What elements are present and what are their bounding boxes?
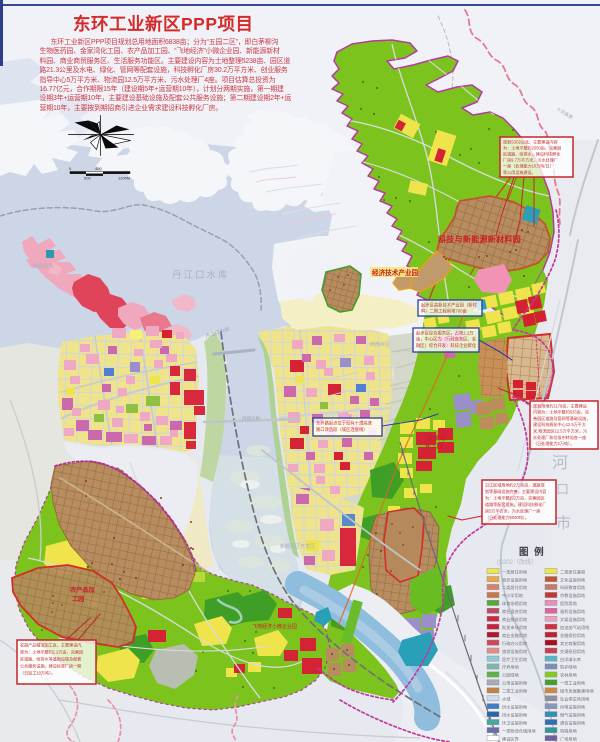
svg-text:(S302（改线）: (S302（改线） <box>497 558 537 566</box>
svg-text:农副产品精深加工区，主要建设内: 农副产品精深加工区，主要建设内 <box>20 641 81 647</box>
svg-text:供水设施用地: 供水设施用地 <box>502 703 528 710</box>
svg-text:商务设施用地: 商务设施用地 <box>502 576 528 583</box>
svg-text:飞地经济小微企业园: 飞地经济小微企业园 <box>252 623 297 630</box>
svg-text:规划S302以北，主要建设内容: 规划S302以北，主要建设内容 <box>503 138 558 144</box>
svg-text:二类居住兼容: 二类居住兼容 <box>560 568 585 575</box>
svg-text:融区）综合开发：科技企业孵化: 融区）综合开发：科技企业孵化 <box>416 342 477 349</box>
svg-text:金融保险用地: 金融保险用地 <box>560 632 586 639</box>
svg-text:交通枢纽用地: 交通枢纽用地 <box>560 648 586 655</box>
svg-text:丹郧大桥: 丹郧大桥 <box>242 415 260 422</box>
svg-text:医疗卫生用地: 医疗卫生用地 <box>502 656 528 663</box>
svg-text:河: 河 <box>552 454 568 472</box>
svg-text:善园区道路及管网等基础设施，: 善园区道路及管网等基础设施， <box>533 415 590 421</box>
svg-text:商业服务用地: 商业服务用地 <box>502 616 528 623</box>
svg-text:城市发展备建用地: 城市发展备建用地 <box>560 688 594 695</box>
svg-text:米,物流园区12.5万平方米，污: 米,物流园区12.5万平方米，污 <box>533 428 587 434</box>
svg-text:建设区界: 建设区界 <box>502 735 520 742</box>
svg-text:一类居住用地: 一类居住用地 <box>502 568 528 575</box>
svg-text:其它商服用地: 其它商服用地 <box>560 640 586 647</box>
svg-text:商住混合用地: 商住混合用地 <box>502 608 528 615</box>
svg-text:西部片区: 西部片区 <box>370 341 390 348</box>
svg-text:起步区综合服务区，占地1.2万: 起步区综合服务区，占地1.2万 <box>416 330 474 337</box>
svg-text:广场用地: 广场用地 <box>560 735 578 742</box>
svg-text:公园绿地: 公园绿地 <box>502 672 520 679</box>
svg-text:口: 口 <box>556 482 569 497</box>
svg-text:疗养用地: 疗养用地 <box>502 664 520 671</box>
svg-text:燃气设施用地: 燃气设施用地 <box>560 711 586 718</box>
svg-text:路口改造段（城区连接线）: 路口改造段（城区连接线） <box>316 426 368 433</box>
svg-text:市: 市 <box>556 515 571 532</box>
svg-text:（日加工10万吨）。: （日加工10万吨）。 <box>20 669 55 675</box>
svg-text:防护绿地: 防护绿地 <box>560 664 578 671</box>
svg-text:建设科技孵化中心12.5万平方: 建设科技孵化中心12.5万平方 <box>533 421 586 427</box>
svg-text:医院用地: 医院用地 <box>560 600 578 607</box>
svg-text:新都片区开发区: 新都片区开发区 <box>280 543 315 550</box>
svg-text:文化设施用地: 文化设施用地 <box>560 576 586 583</box>
svg-text:为：土地平整约2万亩，完善园区: 为：土地平整约2万亩，完善园区 <box>485 494 545 500</box>
svg-text:一类物流仓储用地: 一类物流仓储用地 <box>502 727 536 734</box>
svg-text:料）二期工程用地700亩: 料）二期工程用地700亩 <box>421 307 468 314</box>
svg-text:特殊用地: 特殊用地 <box>560 727 578 734</box>
svg-text:亩，中心区为（行政商务区、金: 亩，中心区为（行政商务区、金 <box>416 336 477 343</box>
svg-text:文娱设施用地: 文娱设施用地 <box>560 616 586 623</box>
svg-text:经济技术产业园: 经济技术产业园 <box>372 268 419 277</box>
svg-text:体育场馆用地: 体育场馆用地 <box>502 600 528 607</box>
svg-text:旅游设施用地: 旅游设施用地 <box>502 648 528 655</box>
svg-text:宗教设施用地: 宗教设施用地 <box>560 592 586 599</box>
svg-text:中小学用地: 中小学用地 <box>502 592 524 599</box>
svg-text:规划用地约1178亩，主要建设: 规划用地约1178亩，主要建设 <box>533 402 587 408</box>
svg-text:沿江区域用地约2万余亩，道路规: 沿江区域用地约2万余亩，道路规 <box>485 481 545 487</box>
svg-text:房5万平方米，污水处理厂一座: 房5万平方米，污水处理厂一座 <box>485 507 541 513</box>
svg-text:城投码头: 城投码头 <box>32 262 55 270</box>
svg-text:农产品加: 农产品加 <box>69 586 95 594</box>
svg-text:划等基础设施完善，主要建设内容: 划等基础设施完善，主要建设内容 <box>485 488 546 494</box>
svg-text:公共服务设施，建设标准厂房一期: 公共服务设施，建设标准厂房一期 <box>20 662 81 668</box>
svg-text:区道路、给排水等基础设施及配套: 区道路、给排水等基础设施及配套 <box>20 655 81 661</box>
svg-text:水域: 水域 <box>502 696 511 702</box>
svg-text:等公用设施建设。: 等公用设施建设。 <box>503 169 536 175</box>
svg-text:水处理厂和垃圾中转站各一座: 水处理厂和垃圾中转站各一座 <box>533 434 586 440</box>
svg-text:丹江口水库: 丹江口水库 <box>172 269 230 281</box>
svg-text:供电设施用地: 供电设施用地 <box>560 703 586 710</box>
svg-text:加油加气站用地: 加油加气站用地 <box>560 624 590 631</box>
svg-text:公用设施用地: 公用设施用地 <box>502 680 528 687</box>
svg-text:科研教育用地: 科研教育用地 <box>560 584 586 591</box>
svg-text:二类居住用地: 二类居住用地 <box>502 584 528 591</box>
svg-text:化工园: 化工园 <box>425 442 443 450</box>
svg-text:一类工业用地: 一类工业用地 <box>560 680 586 687</box>
svg-text:科技与新能源新材料园: 科技与新能源新材料园 <box>438 234 521 244</box>
svg-text:通信设施用地: 通信设施用地 <box>560 719 586 726</box>
svg-text:图 例: 图 例 <box>519 546 545 558</box>
svg-text:东环路起点位于既有十漫高速: 东环路起点位于既有十漫高速 <box>316 420 373 427</box>
svg-text:一座（处理能力10万吨/日）: 一座（处理能力10万吨/日） <box>503 163 554 169</box>
svg-text:农林用地: 农林用地 <box>560 672 578 679</box>
svg-text:500: 500 <box>84 176 91 181</box>
svg-text:金家湾: 金家湾 <box>426 434 445 442</box>
svg-text:排水设施用地: 排水设施用地 <box>502 711 528 718</box>
svg-text:道路等配套设施，建设科技孵化厂: 道路等配套设施，建设科技孵化厂 <box>485 501 546 507</box>
svg-text:工园: 工园 <box>72 595 84 603</box>
svg-text:（日处理能力5000吨）。: （日处理能力5000吨）。 <box>485 514 529 520</box>
svg-text:区道路、给排水，建设科技孵化: 区道路、给排水，建设科技孵化 <box>503 151 560 157</box>
svg-text:为：土地平整约2550亩，完善园: 为：土地平整约2550亩，完善园 <box>503 144 561 150</box>
svg-text:厂房9.7万平方米，污水处理厂: 厂房9.7万平方米，污水处理厂 <box>503 157 558 163</box>
svg-text:内容为：土地平整约533亩，完: 内容为：土地平整约533亩，完 <box>533 409 589 415</box>
svg-text:400: 400 <box>95 166 102 171</box>
svg-text:环卫设施用地: 环卫设施用地 <box>502 719 528 726</box>
svg-text:商业金融用地: 商业金融用地 <box>502 632 528 639</box>
svg-text:行政办公用地: 行政办公用地 <box>502 640 528 647</box>
svg-text:福利设施用地: 福利设施用地 <box>560 608 586 615</box>
svg-text:容为：土地平整约1.2万亩，完善园: 容为：土地平整约1.2万亩，完善园 <box>20 648 83 654</box>
svg-text:社会停车场用地: 社会停车场用地 <box>560 696 590 703</box>
svg-text:二类工业用地: 二类工业用地 <box>502 688 528 695</box>
svg-text:1200M: 1200M <box>118 176 130 181</box>
svg-text:（日处理能力2万吨）。: （日处理能力2万吨）。 <box>533 440 574 446</box>
svg-text:白洋滩水库: 白洋滩水库 <box>560 656 581 663</box>
svg-text:批发市场用地: 批发市场用地 <box>502 624 528 631</box>
